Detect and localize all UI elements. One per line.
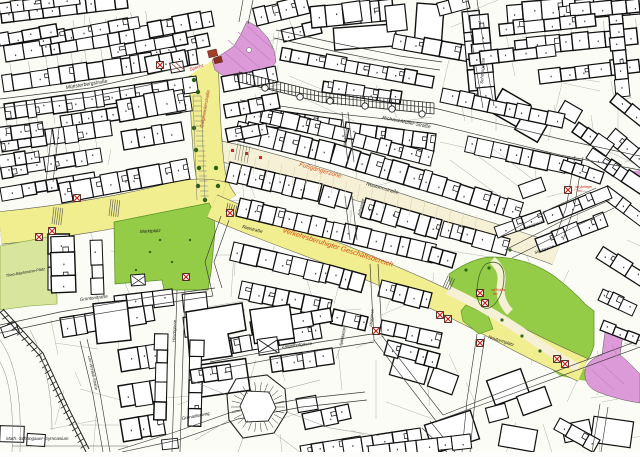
svg-text:Math.-Schongauer-Gymnasium: Math.-Schongauer-Gymnasium	[6, 436, 69, 441]
svg-text:frei: frei	[577, 189, 582, 193]
svg-text:frei: frei	[493, 292, 498, 296]
